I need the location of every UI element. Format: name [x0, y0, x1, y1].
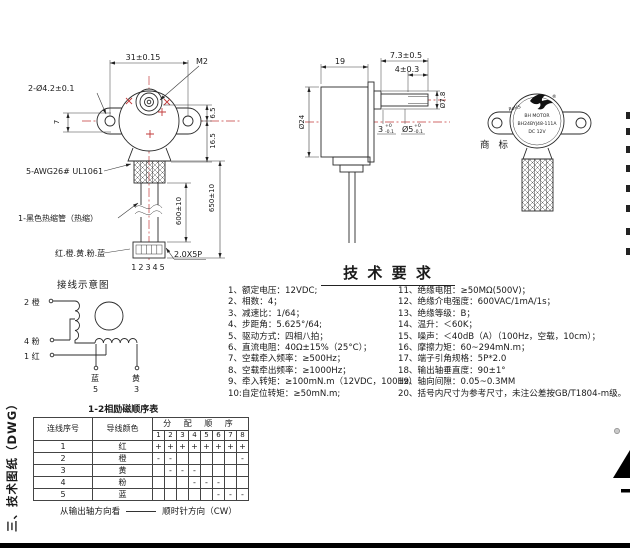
wire-color-cell: 橙: [93, 453, 153, 465]
requirement-item: 11、绝缘电阻：≥50MΩ(500V)；: [398, 286, 626, 297]
lead-blue-label: 蓝: [91, 373, 99, 383]
seq-cell: [189, 453, 201, 465]
right-edge-marks: [613, 428, 630, 492]
sequence-number-header: 7: [225, 431, 237, 441]
wire-color-cell: 粉: [93, 477, 153, 489]
clipped-right-text: [626, 205, 630, 212]
seq-cell: -: [165, 453, 177, 465]
front-view: 12345 31±0.15 M2 2-Ø4.2±0.1 7 6.5 16.5 5…: [18, 53, 240, 272]
requirement-item: 17、端子引角规格：5P*2.0: [398, 354, 626, 365]
seq-cell: [213, 465, 225, 477]
requirement-item: 14、温升：＜60K；: [398, 320, 626, 331]
edge-bar-mark: [621, 489, 630, 493]
wire-label: 5-AWG26# UL1061: [26, 167, 103, 176]
corner-triangle-mark: [613, 450, 630, 478]
seq-cell: [189, 489, 201, 501]
seq-cell: [237, 465, 249, 477]
footer-view-direction: 从输出轴方向看: [60, 505, 120, 517]
dim-600: 600±10: [175, 197, 183, 225]
seq-cell: [177, 453, 189, 465]
seq-cell: -: [153, 453, 165, 465]
terminal-1-red: 1 红: [24, 351, 40, 361]
seq-cell: [165, 489, 177, 501]
brand-name: BH MOTOR: [524, 113, 550, 119]
dim-shaft-dia: Ø5: [402, 124, 413, 134]
table-row: 5 蓝 - - -: [34, 489, 249, 501]
requirement-item: 16、摩擦力矩：60~294mN.m；: [398, 343, 626, 354]
sequence-table-title: 1-2相励磁顺序表: [88, 402, 158, 415]
clipped-right-text: [626, 185, 630, 192]
seq-cell: [201, 453, 213, 465]
requirement-item: 15、噪声：＜40dB（A）（100Hz，空载，10cm）；: [398, 332, 626, 343]
seq-cell: [201, 465, 213, 477]
dim-shaft-tol-up: +0: [414, 123, 421, 129]
seq-cell: -: [237, 453, 249, 465]
table-row: 4 粉 - - -: [34, 477, 249, 489]
thread-label: M2: [196, 57, 208, 66]
dim-6-5: 6.5: [209, 107, 217, 118]
seq-cell: +: [213, 441, 225, 453]
requirement-item: 4、步距角：5.625°/64;: [228, 320, 417, 331]
tech-requirements-right-column: 11、绝缘电阻：≥50MΩ(500V)；12、绝缘介电强度：600VAC/1mA…: [398, 286, 626, 400]
wire-color-cell: 蓝: [93, 489, 153, 501]
wire-index-cell: 5: [34, 489, 93, 501]
seq-cell: [153, 477, 165, 489]
seq-cell: [225, 477, 237, 489]
seq-cell: -: [237, 489, 249, 501]
requirement-item: 3、减速比：1/64；: [228, 309, 417, 320]
wire-color-cell: 红: [93, 441, 153, 453]
sequence-number-header: 5: [201, 431, 213, 441]
clipped-right-text: [626, 248, 630, 255]
seq-cell: +: [153, 441, 165, 453]
seq-cell: [153, 489, 165, 501]
seq-cell: -: [225, 489, 237, 501]
seq-cell: [165, 477, 177, 489]
wire-color-cell: 黄: [93, 465, 153, 477]
requirement-item: 12、绝缘介电强度：600VAC/1mA/1s；: [398, 297, 626, 308]
seq-cell: [225, 453, 237, 465]
requirement-item: 9、牵入转矩：≥100mN.m（12VDC，100Hz）: [228, 377, 417, 388]
sequence-number-header: 2: [165, 431, 177, 441]
tech-requirements-left-column: 1、额定电压：12VDC;2、相数：4；3、减速比：1/64；4、步距角：5.6…: [228, 286, 417, 400]
wiring-diagram: 接线示意图 2 橙 4 粉 1 红 蓝 5 黄 3: [24, 279, 140, 394]
requirement-item: 1、额定电压：12VDC;: [228, 286, 417, 297]
sequence-number-header: 6: [213, 431, 225, 441]
seq-cell: +: [237, 441, 249, 453]
col-header-sequence: 分 配 顺 序: [153, 418, 249, 431]
seq-cell: +: [201, 441, 213, 453]
dim-width: 31±0.15: [126, 53, 161, 62]
table-row: 3 黄 - - -: [34, 465, 249, 477]
sheet-bottom-border: [0, 543, 630, 548]
rotation-direction-note: 从输出轴方向看 顺时针方向（CW）: [60, 505, 250, 517]
seq-cell: [225, 465, 237, 477]
seq-cell: +: [177, 441, 189, 453]
pin-numbers: 12345: [131, 263, 166, 272]
drawing-sheet: 12345 31±0.15 M2 2-Ø4.2±0.1 7 6.5 16.5 5…: [0, 0, 630, 551]
lead-blue-number: 5: [93, 385, 98, 394]
dim-flat-width: 3: [378, 125, 383, 134]
model-number: BH24BYJ48-111A: [518, 121, 558, 127]
col-header-wire-color: 导线颜色: [93, 418, 153, 441]
requirement-item: 20、括号内尺寸为参考尺寸，未注公差按GB/T1804-m级。: [398, 389, 626, 400]
seq-cell: [153, 465, 165, 477]
col-header-wire-index: 连线序号: [34, 418, 93, 441]
requirement-item: 6、直流电阻：40Ω±15%（25°C）；: [228, 343, 417, 354]
wire-index-cell: 1: [34, 441, 93, 453]
terminal-4-pink: 4 粉: [24, 336, 40, 346]
table-row: 2 橙 - - -: [34, 453, 249, 465]
seq-cell: -: [213, 477, 225, 489]
dim-flat-tol-up: +0: [385, 123, 392, 129]
seq-cell: [177, 489, 189, 501]
seq-cell: -: [213, 489, 225, 501]
terminal-2-orange: 2 橙: [24, 297, 40, 307]
sequence-number-header: 1: [153, 431, 165, 441]
clipped-right-text: [626, 146, 630, 153]
holes-label: 2-Ø4.2±0.1: [28, 83, 74, 93]
dim-body-dia: Ø24: [298, 114, 306, 129]
seq-cell: +: [165, 441, 177, 453]
sequence-number-header: 8: [237, 431, 249, 441]
tech-requirements-title: 技 术 要 求: [321, 262, 455, 286]
trademark-caption: 商 标: [480, 139, 511, 151]
seq-cell: -: [189, 477, 201, 489]
sheet-section-label: 三、技术图纸（DWG）: [4, 397, 20, 532]
requirement-item: 18、输出轴垂直度：90±1°: [398, 366, 626, 377]
trademark-view: ® RoHS BH MOTOR BH24BYJ48-111A DC 12V 商 …: [480, 93, 591, 211]
requirement-item: 10:自定位转矩：≥50mN.m;: [228, 389, 417, 400]
wire-colors-label: 红.橙.黄.粉.蓝: [55, 248, 105, 258]
requirement-item: 8、空载牵出频率：≥1000Hz；: [228, 366, 417, 377]
footer-cw-direction: 顺时针方向（CW）: [162, 505, 237, 517]
wire-index-cell: 3: [34, 465, 93, 477]
requirement-item: 5、驱动方式：四相八拍；: [228, 332, 417, 343]
requirement-item: 19、轴向间隙：0.05~0.3MM: [398, 377, 626, 388]
dim-offset7: 7: [53, 120, 61, 124]
wiring-title: 接线示意图: [57, 279, 110, 291]
seq-cell: [237, 477, 249, 489]
seq-cell: +: [225, 441, 237, 453]
lead-yellow-label: 黄: [132, 373, 140, 383]
side-view: 19 7.3±0.5 4±0.3 Ø24 Ø7.8 3 +0 -0.1 Ø5 +…: [298, 51, 450, 243]
dim-flat-len: 4±0.3: [395, 65, 420, 74]
table-row: 1 红 + + + + + + + +: [34, 441, 249, 453]
tube-label: 1-黑色热缩管（热缩）: [18, 213, 98, 223]
dash-line: [126, 511, 156, 512]
seq-cell: +: [189, 441, 201, 453]
seq-cell: [213, 453, 225, 465]
seq-cell: -: [201, 477, 213, 489]
requirement-item: 13、绝缘等级：B；: [398, 309, 626, 320]
clipped-right-text: [626, 128, 630, 135]
clipped-right-text: [626, 165, 630, 172]
dim-650: 650±10: [208, 184, 216, 212]
small-circle-mark: [614, 428, 619, 433]
excitation-sequence-table: 连线序号 导线颜色 分 配 顺 序 12345678 1 红 + + + + +…: [33, 417, 249, 501]
seq-cell: -: [177, 465, 189, 477]
dim-16-5: 16.5: [209, 133, 217, 149]
seq-cell: [201, 489, 213, 501]
seq-cell: -: [165, 465, 177, 477]
seq-cell: [177, 477, 189, 489]
dim-depth: 19: [335, 57, 345, 66]
requirement-item: 7、空载牵入频率：≥500Hz；: [228, 354, 417, 365]
registered-mark: ®: [552, 93, 557, 100]
requirement-item: 2、相数：4；: [228, 297, 417, 308]
lead-yellow-number: 3: [134, 385, 139, 394]
clipped-right-text: [626, 228, 630, 235]
sequence-number-header: 3: [177, 431, 189, 441]
dim-shaft-len: 7.3±0.5: [390, 51, 422, 60]
pitch-label: 2.0X5P: [174, 250, 202, 259]
dim-boss-dia: Ø7.8: [439, 92, 447, 109]
seq-cell: -: [189, 465, 201, 477]
wire-index-cell: 2: [34, 453, 93, 465]
wire-index-cell: 4: [34, 477, 93, 489]
sequence-number-header: 4: [189, 431, 201, 441]
voltage-label: DC 12V: [528, 129, 546, 135]
clipped-right-text: [626, 112, 630, 119]
